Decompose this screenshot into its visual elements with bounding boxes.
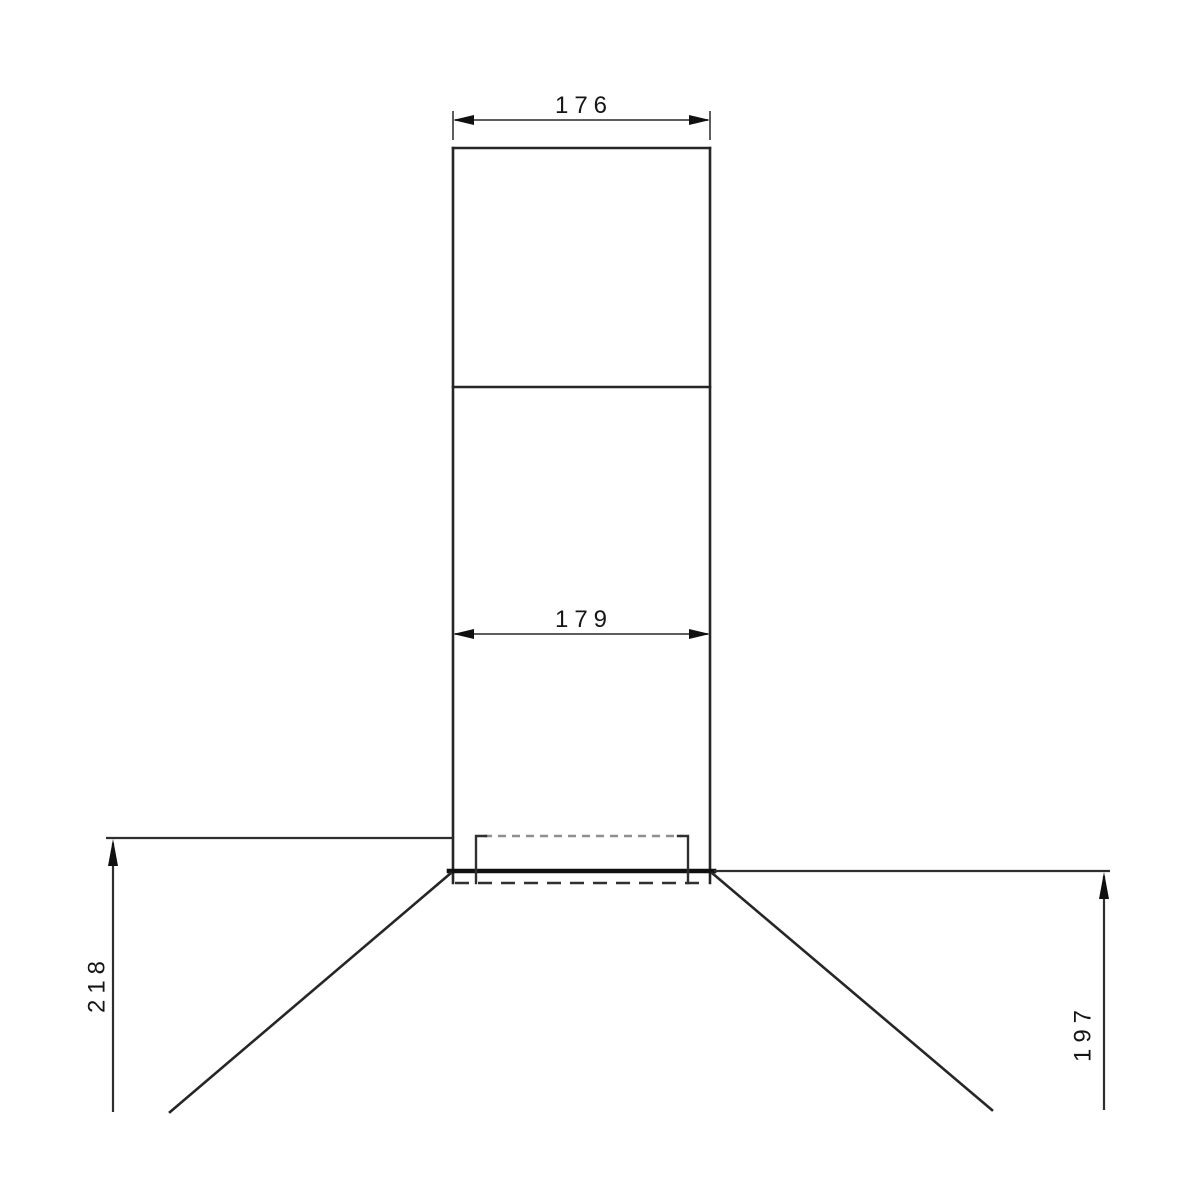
vent-left-corner-bracket	[476, 836, 486, 883]
arrow-right-icon	[689, 629, 710, 639]
arrow-left-icon	[453, 629, 474, 639]
dimension-left-height: 218	[84, 838, 454, 1112]
vent-right-corner-bracket	[678, 836, 688, 883]
dimension-top-width: 176	[453, 92, 710, 140]
dim-label-left-height: 218	[84, 955, 111, 1013]
arrow-up-icon	[1099, 872, 1109, 899]
technical-drawing-canvas: 176 179 218 197	[0, 0, 1200, 1200]
dimension-inner-width: 179	[453, 606, 710, 639]
hood-left-slope	[170, 873, 451, 1112]
arrow-up-icon	[108, 839, 118, 866]
dim-label-inner-width: 179	[555, 606, 613, 633]
dim-label-right-height: 197	[1070, 1004, 1097, 1062]
dim-label-top-width: 176	[555, 92, 613, 119]
arrow-right-icon	[689, 115, 710, 125]
arrow-left-icon	[453, 115, 474, 125]
dimension-right-height: 197	[714, 871, 1110, 1110]
drawing-page: 176 179 218 197	[0, 0, 1200, 1200]
hidden-vent-detail	[455, 836, 708, 883]
hood-right-slope	[712, 873, 992, 1110]
